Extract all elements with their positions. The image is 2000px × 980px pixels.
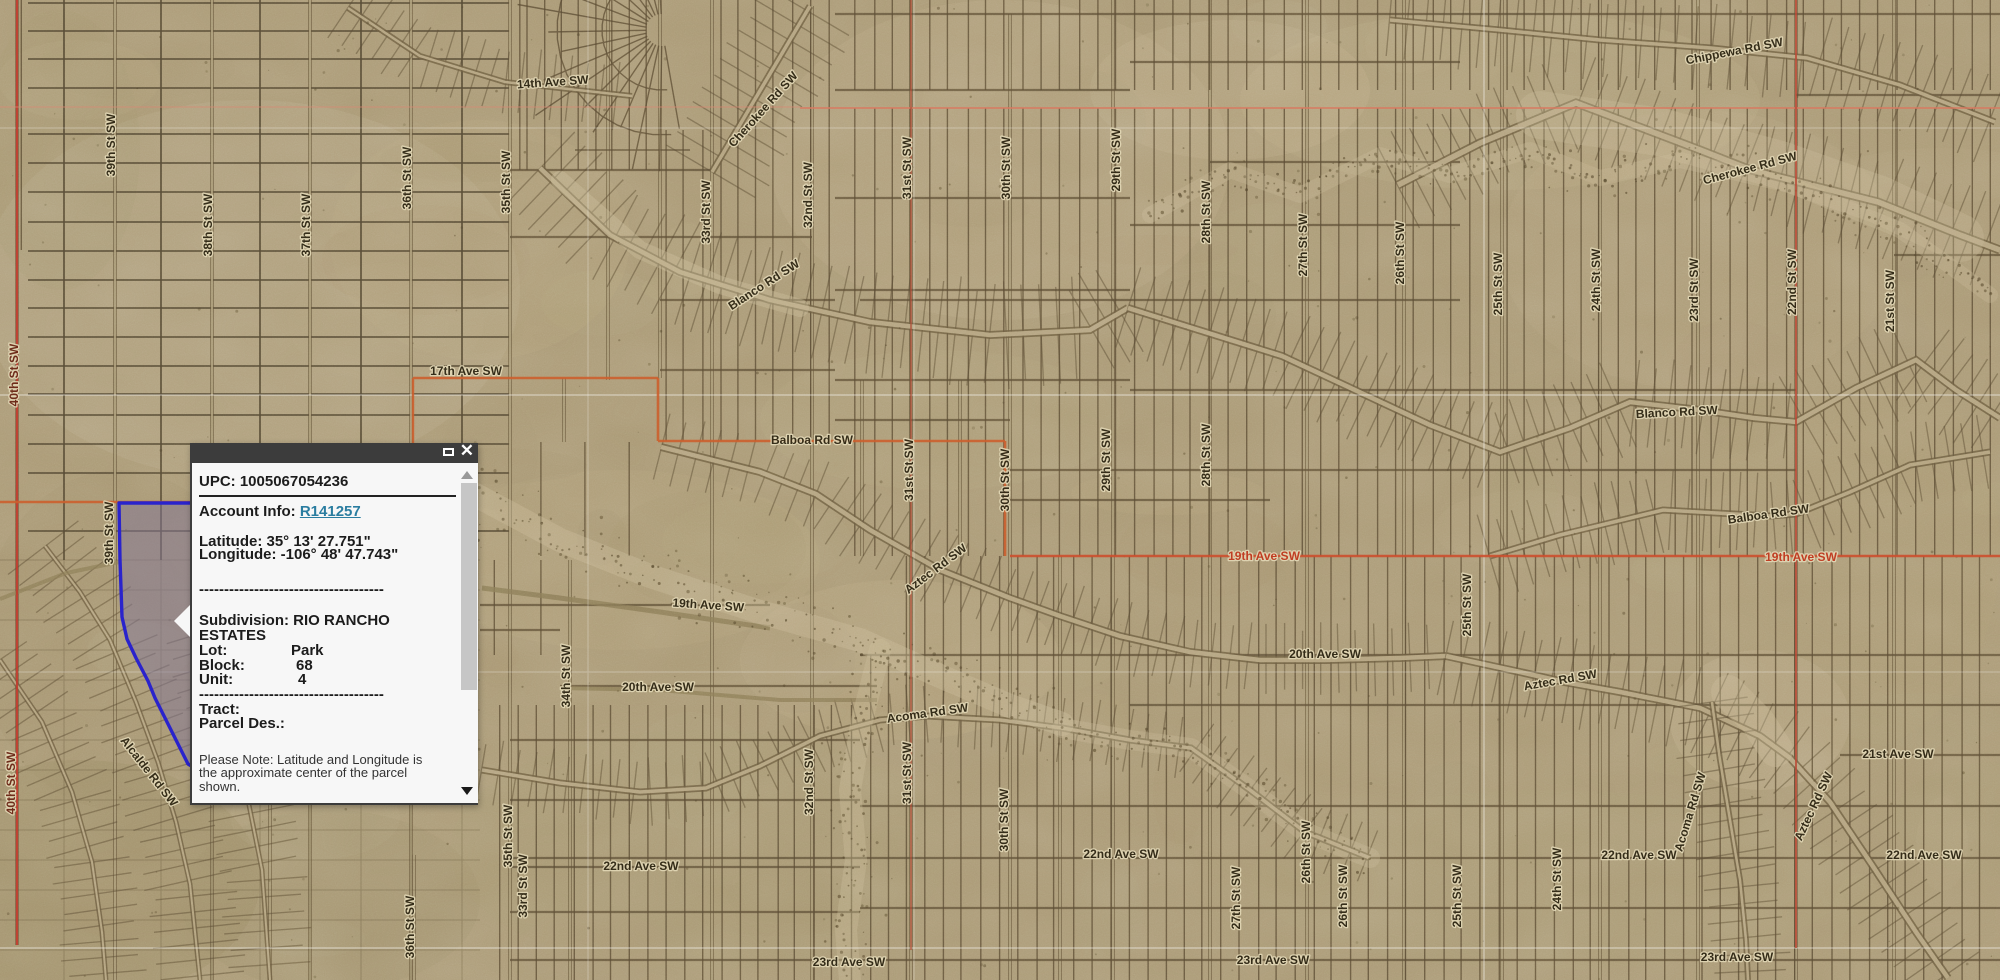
svg-text:19th Ave SW: 19th Ave SW [1228, 549, 1300, 563]
svg-text:29th St SW: 29th St SW [1109, 128, 1123, 191]
svg-text:24th St SW: 24th St SW [1550, 847, 1564, 910]
svg-text:30th St SW: 30th St SW [998, 448, 1012, 511]
svg-text:27th St SW: 27th St SW [1229, 866, 1243, 929]
svg-text:19th Ave SW: 19th Ave SW [1765, 550, 1837, 564]
svg-text:35th St SW: 35th St SW [501, 804, 515, 867]
svg-text:39th St SW: 39th St SW [104, 113, 118, 176]
svg-text:32nd St SW: 32nd St SW [802, 748, 816, 815]
svg-text:40th St SW: 40th St SW [7, 343, 21, 406]
svg-text:28th St SW: 28th St SW [1199, 180, 1213, 243]
svg-text:38th St SW: 38th St SW [201, 193, 215, 256]
svg-text:23rd Ave SW: 23rd Ave SW [1701, 950, 1774, 964]
svg-text:34th St SW: 34th St SW [559, 644, 573, 707]
svg-text:30th St SW: 30th St SW [997, 788, 1011, 851]
svg-text:25th St SW: 25th St SW [1460, 573, 1474, 636]
svg-text:22nd Ave SW: 22nd Ave SW [1083, 847, 1159, 861]
svg-text:22nd St SW: 22nd St SW [1785, 248, 1799, 315]
svg-text:27th St SW: 27th St SW [1296, 213, 1310, 276]
svg-text:25th St SW: 25th St SW [1491, 252, 1505, 315]
svg-text:36th St SW: 36th St SW [403, 895, 417, 958]
svg-text:20th Ave SW: 20th Ave SW [622, 680, 694, 694]
svg-text:23rd Ave SW: 23rd Ave SW [1237, 953, 1310, 967]
svg-text:33rd St SW: 33rd St SW [516, 854, 530, 918]
svg-text:26th St SW: 26th St SW [1336, 864, 1350, 927]
svg-text:23rd St SW: 23rd St SW [1687, 258, 1701, 322]
svg-text:26th St SW: 26th St SW [1393, 221, 1407, 284]
svg-text:24th St SW: 24th St SW [1589, 248, 1603, 311]
svg-text:40th St SW: 40th St SW [4, 751, 18, 814]
svg-text:30th St SW: 30th St SW [999, 136, 1013, 199]
svg-text:37th St SW: 37th St SW [299, 193, 313, 256]
svg-text:31st St SW: 31st St SW [902, 438, 916, 501]
svg-text:20th Ave SW: 20th Ave SW [1289, 647, 1361, 661]
svg-text:22nd Ave SW: 22nd Ave SW [1601, 848, 1677, 862]
svg-text:39th St SW: 39th St SW [102, 501, 116, 564]
svg-text:Balboa Rd SW: Balboa Rd SW [771, 433, 854, 447]
svg-text:21st Ave SW: 21st Ave SW [1862, 747, 1934, 761]
svg-text:36th St SW: 36th St SW [400, 146, 414, 209]
svg-text:35th St SW: 35th St SW [499, 150, 513, 213]
svg-text:25th St SW: 25th St SW [1450, 864, 1464, 927]
svg-text:21st St SW: 21st St SW [1883, 269, 1897, 332]
svg-text:23rd Ave SW: 23rd Ave SW [813, 955, 886, 969]
svg-text:26th St SW: 26th St SW [1299, 820, 1313, 883]
svg-text:31st St SW: 31st St SW [900, 136, 914, 199]
svg-text:22nd Ave SW: 22nd Ave SW [603, 859, 679, 873]
svg-text:33rd St SW: 33rd St SW [699, 180, 713, 244]
svg-text:22nd Ave SW: 22nd Ave SW [1886, 848, 1962, 862]
svg-text:28th St SW: 28th St SW [1199, 423, 1213, 486]
svg-text:31st St SW: 31st St SW [900, 741, 914, 804]
svg-text:32nd St SW: 32nd St SW [801, 161, 815, 228]
svg-text:29th St SW: 29th St SW [1099, 428, 1113, 491]
svg-text:17th Ave SW: 17th Ave SW [430, 364, 502, 378]
